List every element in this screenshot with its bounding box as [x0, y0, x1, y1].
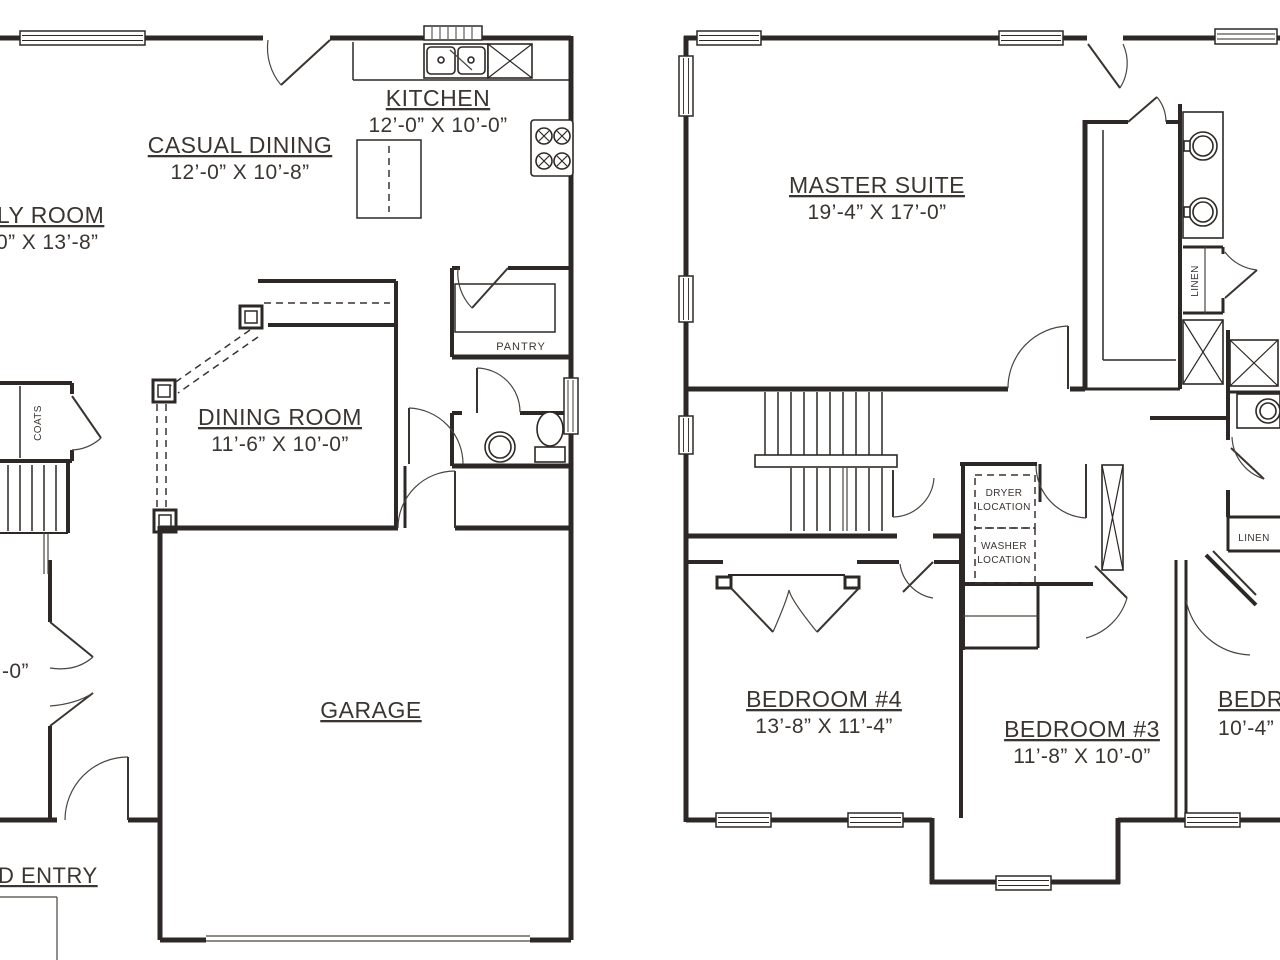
kitchen-dims: 12’-0” X 10’-0”	[368, 114, 507, 137]
first-floor-plan: KITCHEN 12’-0” X 10’-0” CASUAL DINING 12…	[0, 26, 578, 960]
coats-label: COATS	[33, 405, 44, 441]
dishwasher-icon	[488, 44, 532, 78]
floorplan-drawing: KITCHEN 12’-0” X 10’-0” CASUAL DINING 12…	[0, 0, 1280, 960]
kitchen-label: KITCHEN	[386, 85, 490, 111]
bedroom2-dims: 10’-4”	[1218, 717, 1274, 740]
floorplan-canvas: KITCHEN 12’-0” X 10’-0” CASUAL DINING 12…	[0, 0, 1280, 960]
dryer-label-2: LOCATION	[977, 502, 1031, 513]
bedroom3-label: BEDROOM #3	[1004, 716, 1160, 742]
linen-hall-label: LINEN	[1238, 533, 1269, 544]
kitchen-sink-icon	[424, 44, 488, 78]
pantry-shelf	[455, 284, 555, 332]
master-closet	[1103, 130, 1176, 360]
dryer-label-1: DRYER	[986, 488, 1023, 499]
linen-closet-master	[1183, 247, 1223, 313]
dining-room-label: DINING ROOM	[198, 404, 362, 430]
master-suite-label: MASTER SUITE	[789, 172, 965, 198]
garage-door	[206, 936, 530, 941]
washer-label-2: LOCATION	[977, 555, 1031, 566]
stairs-second	[755, 392, 897, 531]
porch-outline	[0, 897, 57, 960]
linen-master-label: LINEN	[1190, 265, 1201, 296]
covered-entry-label: D ENTRY	[0, 863, 98, 888]
bedroom4-label: BEDROOM #4	[746, 686, 902, 712]
double-vanity	[1183, 112, 1223, 238]
washer-label-1: WASHER	[981, 541, 1027, 552]
dining-room-dims: 11’-6” X 10’-0”	[211, 433, 349, 456]
pantry-label: PANTRY	[496, 341, 546, 353]
second-floor-plan: MASTER SUITE 19’-4” X 17’-0” BEDROOM #4 …	[679, 29, 1280, 890]
powder-sink-icon	[485, 432, 515, 462]
shower-icon	[1183, 320, 1223, 384]
foyer-dim-fragment: -0”	[2, 660, 29, 683]
bedroom2-label: BEDRO	[1218, 686, 1280, 712]
window	[20, 26, 578, 434]
stairs-first	[0, 465, 68, 574]
kitchen-island	[357, 140, 421, 218]
family-room-label: ILY ROOM	[0, 202, 104, 228]
family-room-dims: 0” X 13’-8”	[0, 231, 98, 254]
tub-icon	[1230, 340, 1278, 386]
bedroom4-dims: 13’-8” X 11’-4”	[755, 715, 893, 738]
casual-dining-label: CASUAL DINING	[148, 132, 333, 158]
master-suite-dims: 19’-4” X 17’-0”	[807, 201, 946, 224]
bedroom3-dims: 11’-8” X 10’-0”	[1013, 745, 1151, 768]
garage-label: GARAGE	[320, 697, 421, 723]
casual-dining-dims: 12’-0” X 10’-8”	[170, 161, 309, 184]
bedroom4-closet	[717, 575, 859, 632]
toilet-icon	[535, 412, 565, 462]
stove-icon	[531, 120, 573, 176]
bath-vanity-2	[1237, 394, 1280, 428]
